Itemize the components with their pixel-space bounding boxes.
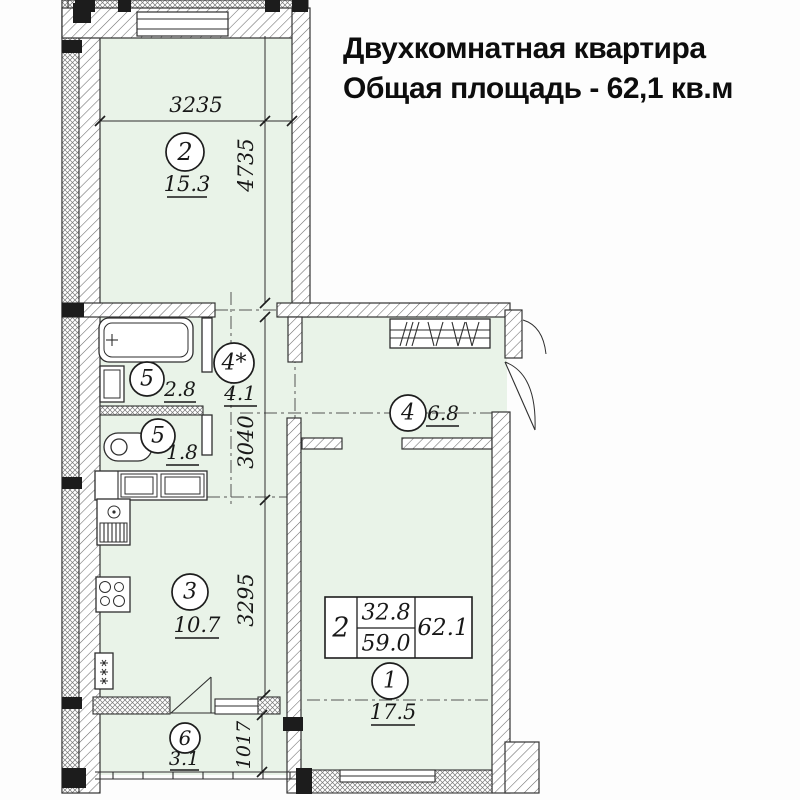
- table-rooms-count: 2: [331, 613, 349, 644]
- room-area: 3.1: [169, 748, 199, 770]
- wall-bath-wc: [100, 406, 203, 415]
- bathtub: [99, 318, 193, 362]
- room-number: 4*: [221, 351, 247, 376]
- room-number: 5: [151, 424, 165, 449]
- floor-plan-drawing: 3235 4735 3040 3295 1017 2: [0, 0, 800, 800]
- kitchen-sink: [97, 499, 130, 545]
- room-number: 1: [383, 669, 397, 694]
- wall-kitchen-living: [287, 418, 301, 793]
- dim-3295: 3295: [234, 573, 258, 626]
- room-area: 17.5: [370, 700, 417, 724]
- dim-3235: 3235: [169, 93, 222, 117]
- wall-bedroom-right: [292, 8, 310, 317]
- room-number: 2: [176, 138, 192, 166]
- wall-entrance-post: [505, 310, 522, 358]
- table-total-area: 62.1: [417, 615, 468, 641]
- wall-living-right: [492, 412, 510, 793]
- room-area: 15.3: [164, 172, 211, 196]
- kitchen-counter: [95, 471, 207, 500]
- wall-hall-corridor-stub: [288, 317, 302, 362]
- room-area: 2.8: [163, 377, 196, 401]
- table-area-no-balcony: 59.0: [362, 632, 411, 657]
- room-area: 4.1: [223, 381, 256, 405]
- table-living-area: 32.8: [362, 601, 411, 626]
- wall-bedroom-bath: [62, 303, 215, 317]
- room-number: 3: [183, 580, 197, 605]
- room-area: 6.8: [427, 401, 459, 425]
- room-area: 10.7: [174, 613, 221, 637]
- room-label-balcony: 6 3.1: [169, 723, 200, 770]
- area-table: 2 32.8 59.0 62.1: [325, 597, 472, 658]
- washing-machine: [100, 366, 124, 402]
- wall-left-insulation: [62, 0, 79, 793]
- window-bedroom: [137, 12, 228, 36]
- wall-stub-left: [302, 438, 342, 449]
- title-line1: Двухкомнатная квартира: [343, 32, 706, 65]
- room-number: 5: [140, 367, 154, 392]
- dim-4735: 4735: [234, 138, 258, 192]
- doorpost-bath: [202, 318, 212, 372]
- title-line2: Общая площадь - 62,1 кв.м: [343, 72, 733, 105]
- wall-corridor-top: [277, 303, 510, 317]
- radiator: [95, 653, 113, 689]
- stove: [96, 577, 130, 612]
- dim-1017: 1017: [233, 720, 255, 769]
- doorpost-wc: [202, 415, 212, 455]
- dim-3040: 3040: [234, 415, 258, 468]
- room-number: 6: [179, 726, 192, 750]
- floor-plan-page: 3235 4735 3040 3295 1017 2: [0, 0, 800, 800]
- wall-stub-right: [402, 438, 492, 449]
- room-area: 1.8: [166, 440, 198, 464]
- wardrobe: [390, 319, 490, 348]
- room-number: 4: [400, 401, 415, 426]
